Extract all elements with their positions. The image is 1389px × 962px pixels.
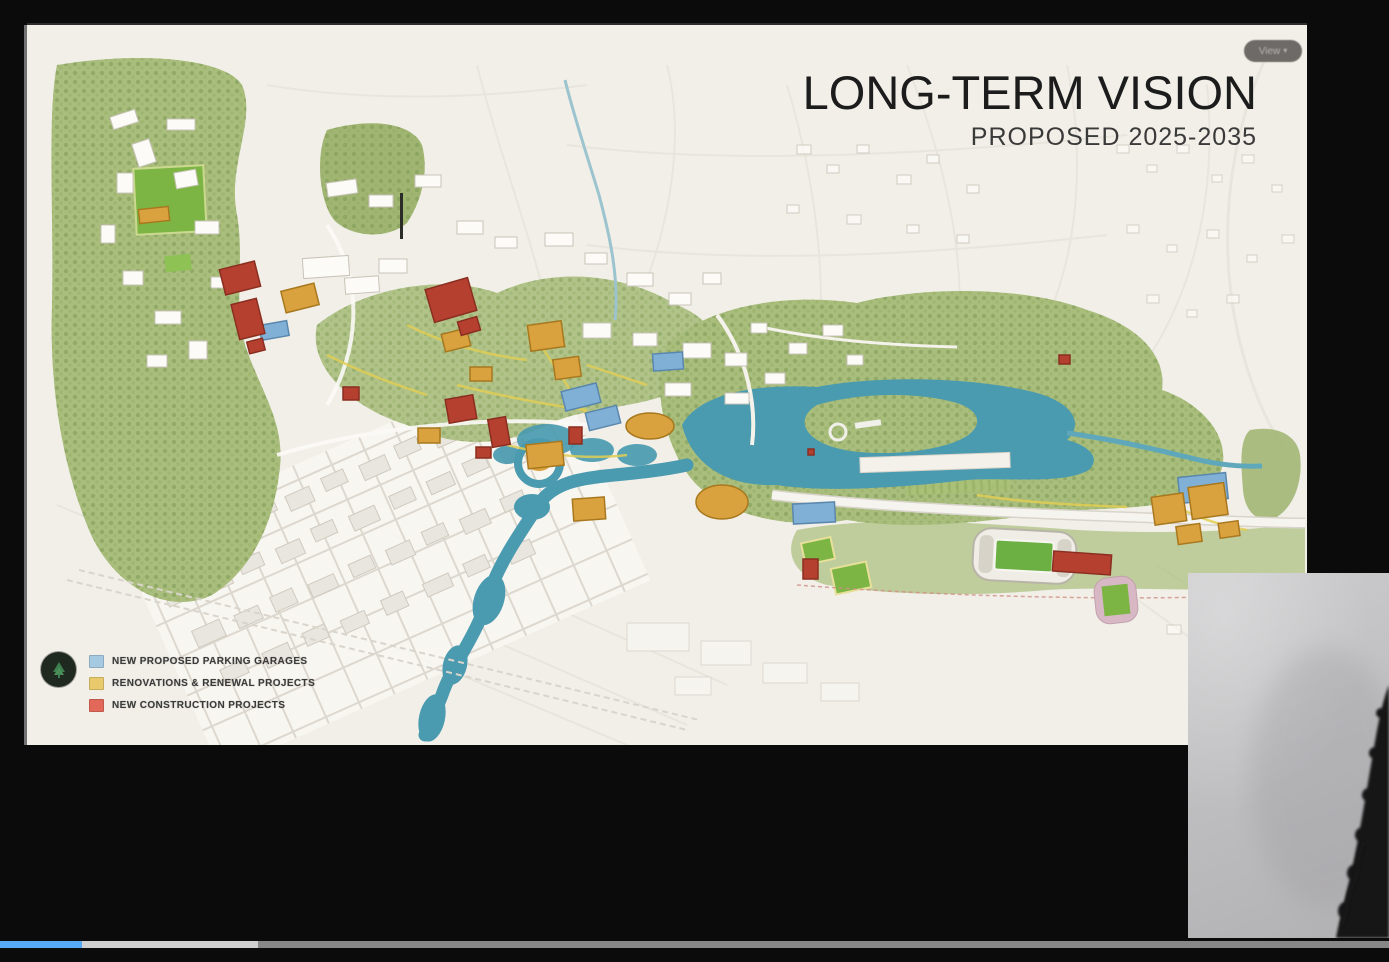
- progress-played: [0, 941, 82, 948]
- title-block: LONG-TERM VISION PROPOSED 2025-2035: [803, 69, 1257, 152]
- track-field: [1093, 575, 1140, 625]
- legend-swatch-red: [89, 699, 104, 712]
- legend-label: NEW PROPOSED PARKING GARAGES: [112, 656, 307, 667]
- legend-item-renovations: RENOVATIONS & RENEWAL PROJECTS: [89, 677, 315, 690]
- legend-items: NEW PROPOSED PARKING GARAGES RENOVATIONS…: [89, 652, 315, 712]
- legend-label: NEW CONSTRUCTION PROJECTS: [112, 700, 285, 711]
- stadium-pitch: [994, 540, 1053, 573]
- view-options-label: View: [1259, 46, 1281, 57]
- legend-label: RENOVATIONS & RENEWAL PROJECTS: [112, 678, 315, 689]
- campus-logo: [41, 652, 76, 687]
- tree-icon: [49, 660, 69, 680]
- video-frame: LONG-TERM VISION PROPOSED 2025-2035 View…: [0, 0, 1389, 962]
- slide-subtitle: PROPOSED 2025-2035: [803, 123, 1257, 152]
- legend-item-new-construction: NEW CONSTRUCTION PROJECTS: [89, 699, 315, 712]
- person-silhouette: [1188, 573, 1389, 938]
- legend-swatch-blue: [89, 655, 104, 668]
- slide-title: LONG-TERM VISION: [803, 69, 1257, 116]
- progress-buffered: [82, 941, 258, 948]
- view-options-badge[interactable]: View ▾: [1244, 40, 1302, 62]
- video-progress-bar[interactable]: [0, 941, 1389, 948]
- legend-item-parking-garages: NEW PROPOSED PARKING GARAGES: [89, 655, 315, 668]
- chevron-down-icon: ▾: [1283, 47, 1287, 55]
- flagpole: [400, 193, 403, 239]
- presentation-slide: LONG-TERM VISION PROPOSED 2025-2035 View…: [27, 25, 1307, 745]
- progress-remaining: [258, 941, 1389, 948]
- webcam-video: [1188, 573, 1389, 938]
- legend-swatch-yellow: [89, 677, 104, 690]
- amphitheater: [626, 413, 674, 439]
- map-legend: NEW PROPOSED PARKING GARAGES RENOVATIONS…: [41, 652, 315, 712]
